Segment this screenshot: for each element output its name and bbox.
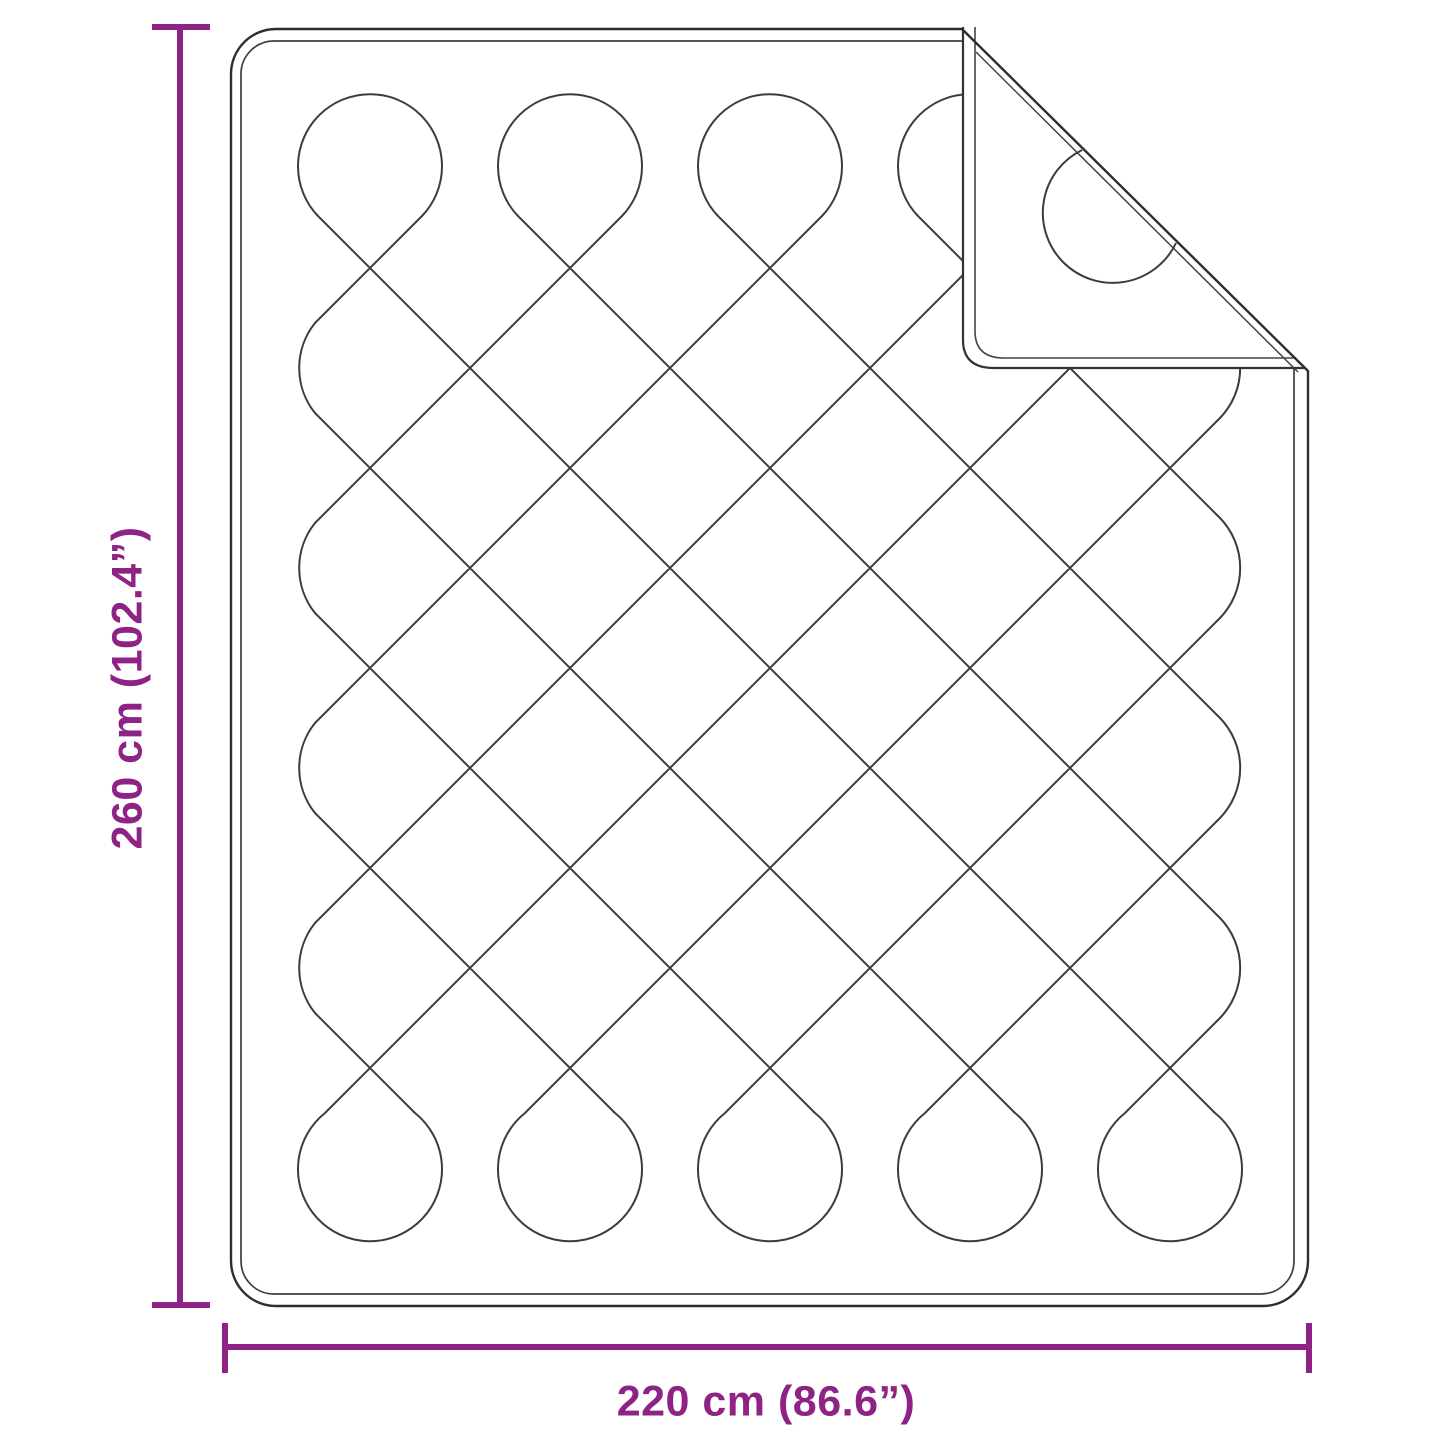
- product-dimension-diagram: 260 cm (102.4”) 220 cm (86.6”): [0, 0, 1445, 1445]
- width-dimension-label: 220 cm (86.6”): [617, 1378, 916, 1427]
- width-dimension-right-cap: [1306, 1323, 1312, 1373]
- blanket-illustration: [0, 0, 1445, 1445]
- height-dimension-shaft: [177, 28, 183, 1304]
- width-dimension-shaft: [226, 1344, 1308, 1350]
- height-dimension-bottom-cap: [152, 1302, 210, 1308]
- height-dimension-label: 260 cm (102.4”): [104, 526, 153, 849]
